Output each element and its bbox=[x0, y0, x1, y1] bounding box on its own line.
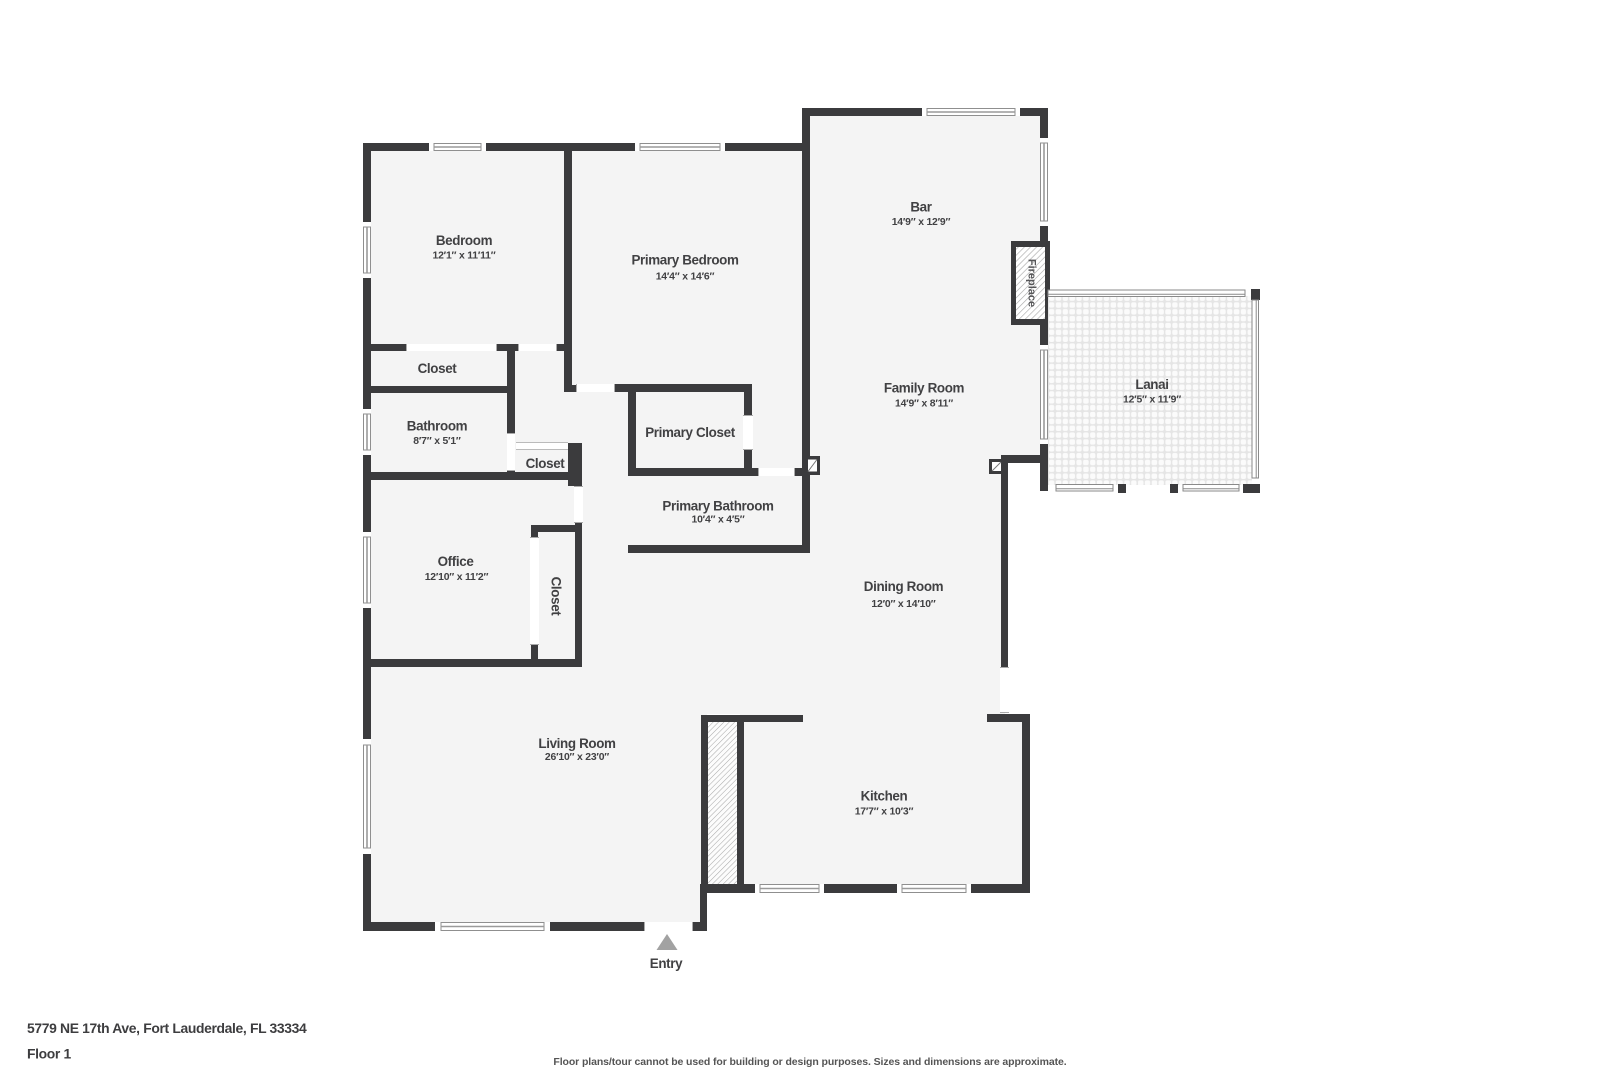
svg-text:Primary Bedroom: Primary Bedroom bbox=[631, 253, 739, 268]
svg-text:Fireplace: Fireplace bbox=[1026, 259, 1038, 307]
svg-text:Living Room: Living Room bbox=[538, 736, 616, 751]
svg-text:5779 NE 17th Ave, Fort Lauderd: 5779 NE 17th Ave, Fort Lauderdale, FL 33… bbox=[27, 1020, 307, 1036]
svg-text:12′5″ x 11′9″: 12′5″ x 11′9″ bbox=[1123, 395, 1181, 406]
svg-text:Lanai: Lanai bbox=[1135, 377, 1168, 392]
svg-text:26′10″ x 23′0″: 26′10″ x 23′0″ bbox=[545, 752, 609, 763]
svg-text:10′4″ x 4′5″: 10′4″ x 4′5″ bbox=[692, 515, 745, 526]
svg-text:Kitchen: Kitchen bbox=[861, 789, 908, 804]
svg-text:14′9″ x 12′9″: 14′9″ x 12′9″ bbox=[892, 217, 951, 228]
svg-text:Primary Closet: Primary Closet bbox=[645, 425, 736, 440]
svg-text:Primary Bathroom: Primary Bathroom bbox=[662, 499, 774, 514]
svg-text:12′10″ x 11′2″: 12′10″ x 11′2″ bbox=[425, 572, 489, 583]
svg-text:14′4″ x 14′6″: 14′4″ x 14′6″ bbox=[656, 272, 715, 283]
svg-text:Family Room: Family Room bbox=[884, 381, 965, 396]
svg-text:Bedroom: Bedroom bbox=[436, 233, 493, 248]
svg-text:8′7″ x 5′1″: 8′7″ x 5′1″ bbox=[413, 436, 461, 447]
svg-text:Floor plans/tour cannot be use: Floor plans/tour cannot be used for buil… bbox=[553, 1056, 1066, 1068]
svg-text:17′7″ x 10′3″: 17′7″ x 10′3″ bbox=[855, 807, 914, 818]
svg-text:Entry: Entry bbox=[650, 956, 683, 971]
svg-text:Closet: Closet bbox=[526, 456, 566, 471]
svg-text:Floor 1: Floor 1 bbox=[27, 1046, 71, 1062]
svg-text:12′1″ x 11′11″: 12′1″ x 11′11″ bbox=[433, 251, 496, 262]
svg-text:Closet: Closet bbox=[549, 577, 564, 617]
svg-text:14′9″ x 8′11″: 14′9″ x 8′11″ bbox=[895, 399, 953, 410]
svg-text:Bathroom: Bathroom bbox=[407, 419, 468, 434]
svg-text:12′0″ x 14′10″: 12′0″ x 14′10″ bbox=[871, 599, 935, 610]
svg-text:Bar: Bar bbox=[910, 200, 932, 215]
svg-text:Closet: Closet bbox=[418, 361, 458, 376]
svg-text:Office: Office bbox=[438, 554, 474, 569]
svg-text:Dining Room: Dining Room bbox=[864, 579, 944, 594]
